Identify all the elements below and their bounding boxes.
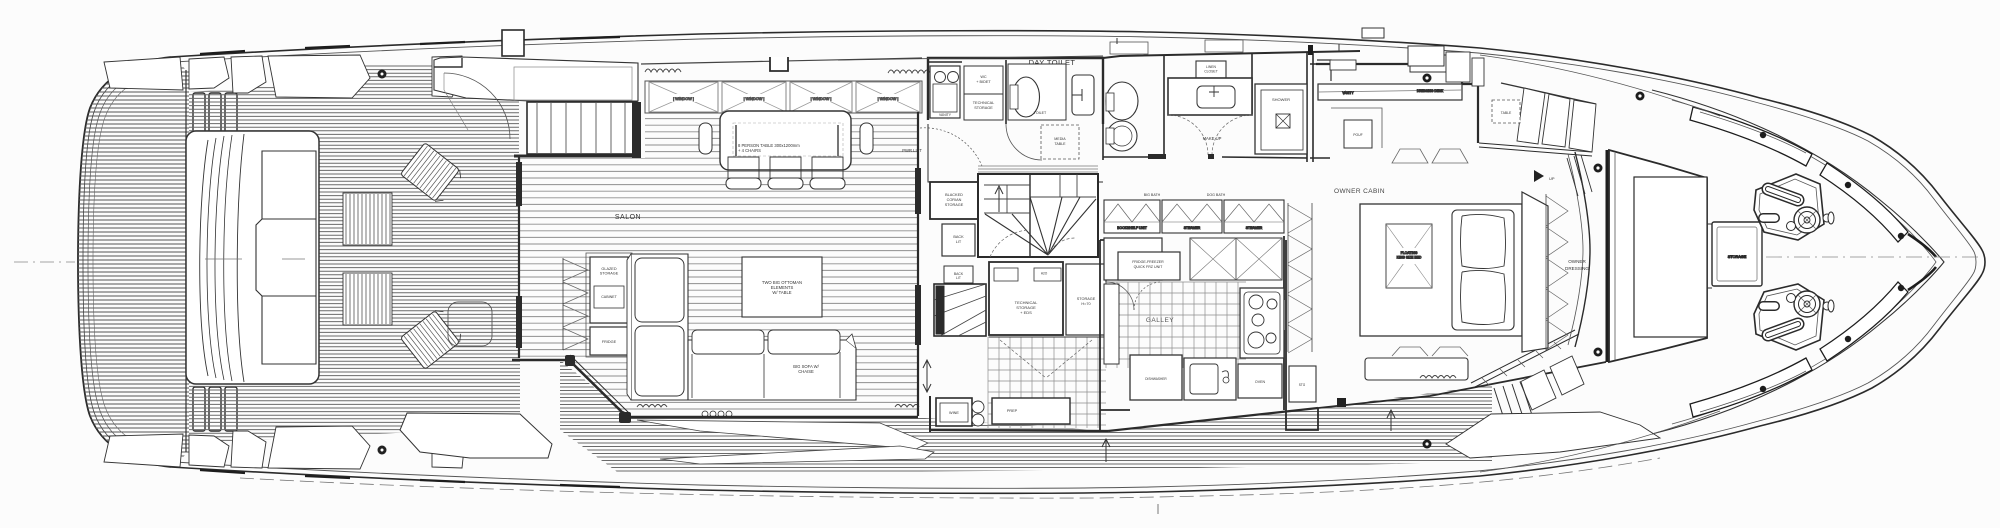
svg-text:STG: STG bbox=[1299, 383, 1306, 387]
svg-text:SHOWER: SHOWER bbox=[1272, 97, 1290, 102]
svg-text:+ 4 CHAIRS: + 4 CHAIRS bbox=[738, 148, 761, 153]
svg-text:STORAGE: STORAGE bbox=[945, 203, 964, 207]
svg-text:DOG BATH: DOG BATH bbox=[1207, 193, 1226, 197]
svg-text:STORAGE: STORAGE bbox=[1077, 297, 1096, 301]
svg-text:STEAMER: STEAMER bbox=[1184, 226, 1201, 230]
svg-text:FRIDGE: FRIDGE bbox=[602, 340, 617, 344]
svg-text:TECHNICAL: TECHNICAL bbox=[973, 101, 995, 105]
svg-text:H=70: H=70 bbox=[1081, 302, 1090, 306]
svg-text:CABINET: CABINET bbox=[601, 295, 617, 299]
svg-text:DRESSING DESK: DRESSING DESK bbox=[1417, 89, 1444, 93]
svg-text:CLOSET: CLOSET bbox=[1204, 70, 1218, 74]
svg-text:WINE: WINE bbox=[949, 411, 959, 415]
svg-text:POUF: POUF bbox=[1353, 133, 1362, 137]
svg-text:VANITY: VANITY bbox=[939, 113, 952, 117]
svg-text:LINEN: LINEN bbox=[1206, 65, 1217, 69]
svg-text:STORAGE: STORAGE bbox=[1728, 255, 1747, 259]
svg-text:DISHWASHER: DISHWASHER bbox=[1145, 377, 1167, 381]
svg-text:LIT: LIT bbox=[956, 276, 961, 280]
svg-text:FRIDGE-FREEZER: FRIDGE-FREEZER bbox=[1132, 260, 1164, 264]
svg-text:| WINDOW |: | WINDOW | bbox=[673, 97, 694, 101]
svg-text:PWR LIFT: PWR LIFT bbox=[902, 148, 922, 153]
svg-text:CHAISE: CHAISE bbox=[798, 369, 814, 374]
svg-text:DRESSING: DRESSING bbox=[1565, 266, 1589, 271]
svg-text:H2O: H2O bbox=[1041, 272, 1048, 276]
svg-text:KING SIZE BED: KING SIZE BED bbox=[1397, 256, 1422, 260]
svg-text:WC: WC bbox=[980, 75, 987, 79]
svg-text:| WINDOW |: | WINDOW | bbox=[811, 97, 832, 101]
svg-text:BLACKED: BLACKED bbox=[945, 193, 963, 197]
svg-text:BOOKSHELF UNIT: BOOKSHELF UNIT bbox=[1117, 226, 1147, 230]
svg-text:| WINDOW |: | WINDOW | bbox=[878, 97, 899, 101]
svg-text:| WINDOW |: | WINDOW | bbox=[744, 97, 765, 101]
svg-text:OWNER CABIN: OWNER CABIN bbox=[1334, 188, 1385, 195]
svg-text:LIT: LIT bbox=[956, 240, 962, 244]
svg-text:GLAZED: GLAZED bbox=[601, 267, 616, 271]
svg-text:BIG BATH: BIG BATH bbox=[1144, 193, 1161, 197]
svg-text:CORIAN: CORIAN bbox=[947, 198, 962, 202]
svg-text:STORAGE: STORAGE bbox=[600, 272, 619, 276]
svg-text:MEDIA: MEDIA bbox=[1054, 137, 1066, 141]
svg-text:OWNER: OWNER bbox=[1568, 259, 1586, 264]
svg-text:FLOATING: FLOATING bbox=[1401, 251, 1418, 255]
svg-text:+ BIDET: + BIDET bbox=[976, 80, 991, 84]
svg-text:PREP: PREP bbox=[1007, 409, 1018, 413]
svg-text:STEAMER: STEAMER bbox=[1246, 226, 1263, 230]
svg-text:+ EDS: + EDS bbox=[1020, 310, 1032, 315]
svg-text:TABLE: TABLE bbox=[1501, 111, 1512, 115]
svg-text:TABLE: TABLE bbox=[1054, 142, 1066, 146]
svg-text:OVEN: OVEN bbox=[1255, 380, 1266, 384]
svg-text:W/ TABLE: W/ TABLE bbox=[772, 290, 791, 295]
svg-text:STORAGE: STORAGE bbox=[974, 106, 993, 110]
svg-text:SALON: SALON bbox=[615, 214, 641, 221]
svg-text:BACK: BACK bbox=[953, 235, 964, 239]
svg-text:QUICK FRZ UNIT: QUICK FRZ UNIT bbox=[1134, 265, 1164, 269]
svg-text:VANITY: VANITY bbox=[1342, 91, 1354, 95]
svg-text:TOILET: TOILET bbox=[1034, 111, 1047, 115]
svg-text:UP: UP bbox=[1549, 176, 1555, 181]
svg-text:GALLEY: GALLEY bbox=[1146, 317, 1174, 324]
